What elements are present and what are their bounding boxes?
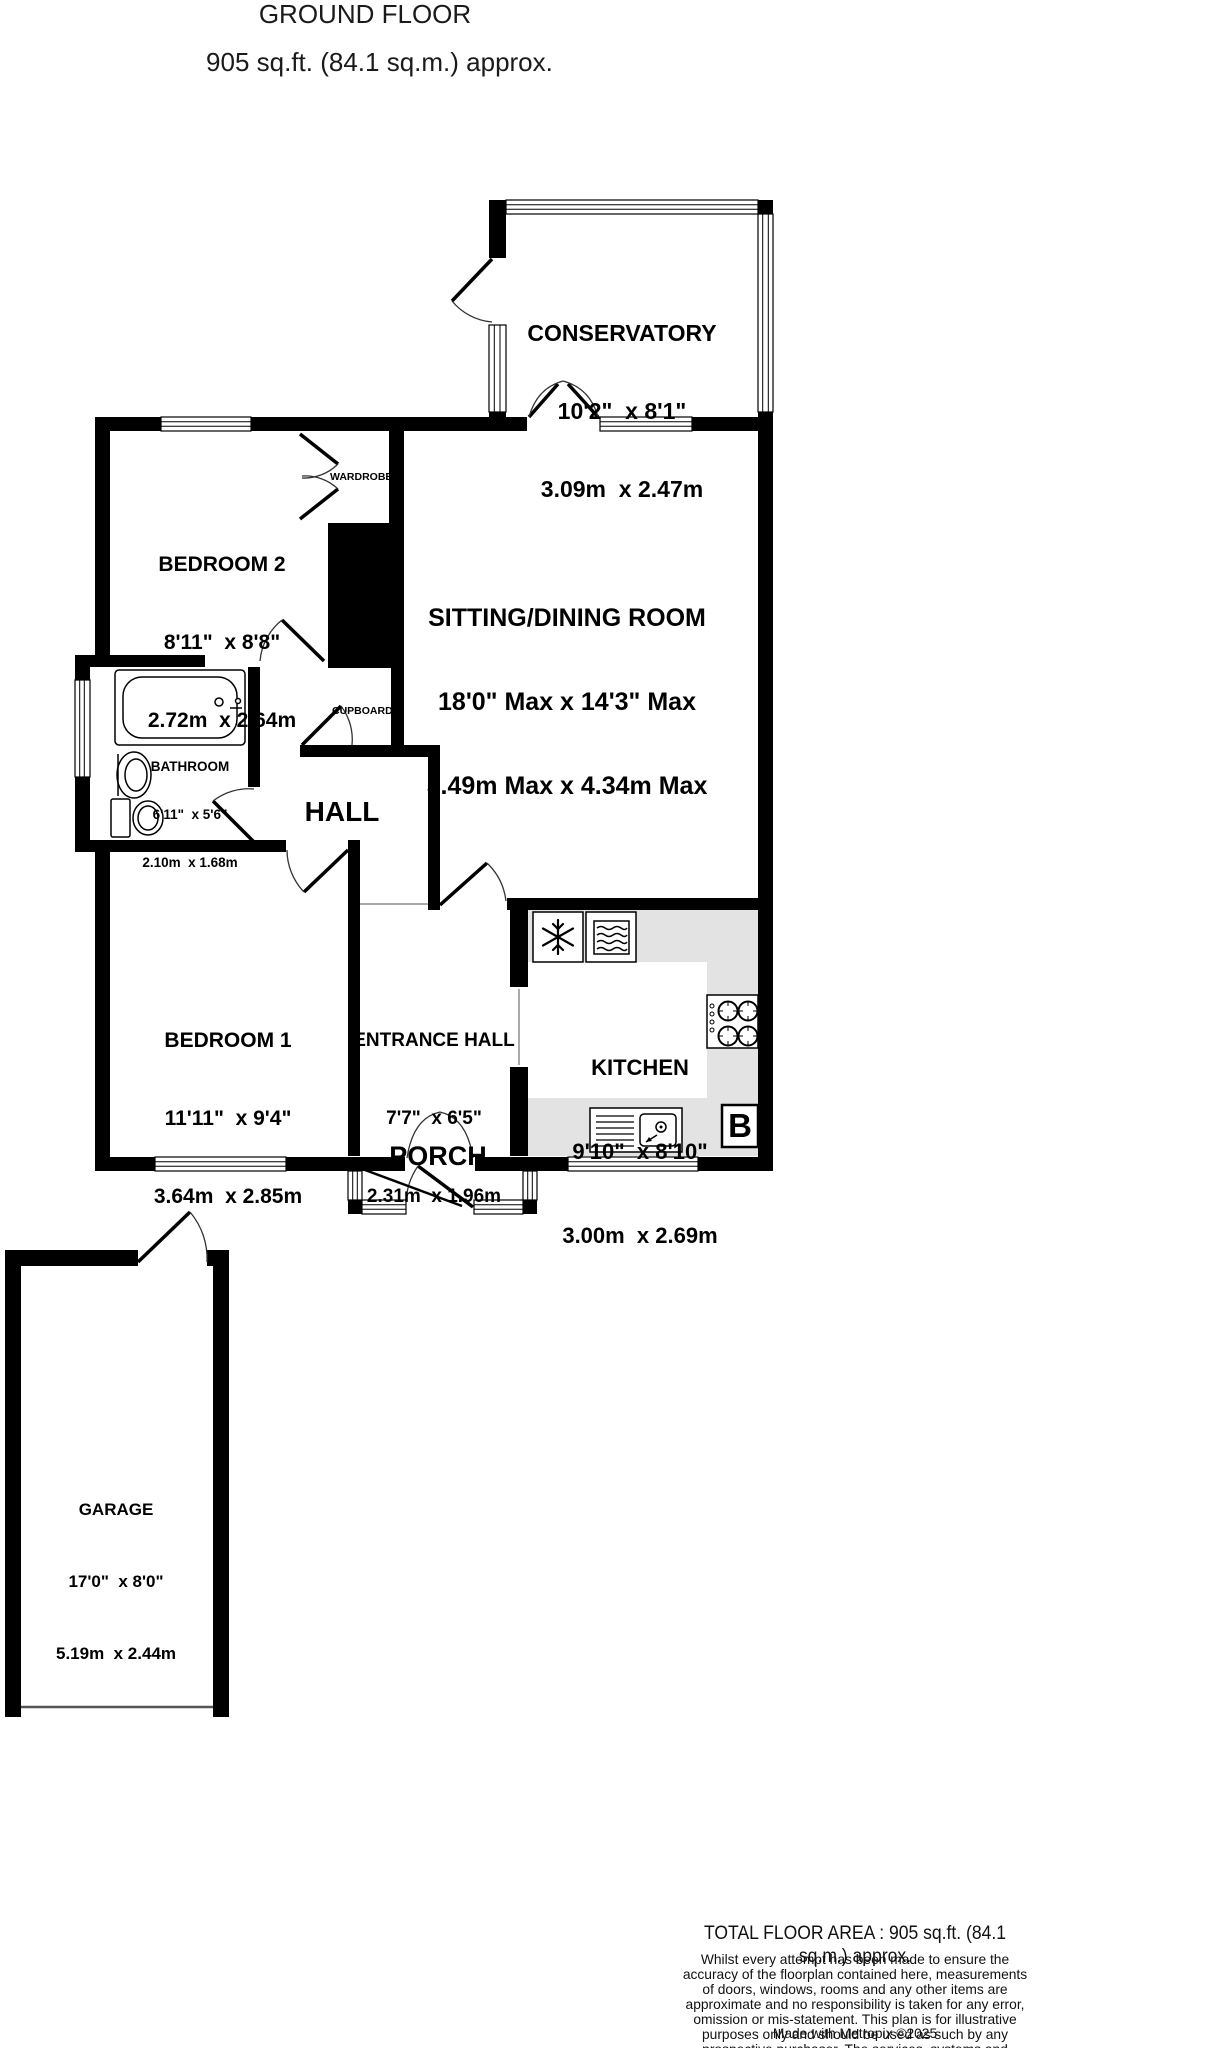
freezer-icon <box>533 912 583 962</box>
room-dims-metric: 2.31m x 1.96m <box>353 1184 515 1210</box>
room-dims-imperial: 7'7" x 6'5" <box>353 1106 515 1132</box>
room-name: BEDROOM 2 <box>148 552 296 578</box>
room-label-porch: PORCH <box>389 1141 487 1172</box>
oven-icon <box>586 912 636 962</box>
room-label-entrance-hall: ENTRANCE HALL 7'7" x 6'5" 2.31m x 1.96m <box>353 976 515 1262</box>
room-label-conservatory: CONSERVATORY 10'2" x 8'1" 3.09m x 2.47m <box>527 268 716 554</box>
room-dims-metric: 3.09m x 2.47m <box>527 476 716 502</box>
plan-title-area: 905 sq.ft. (84.1 sq.m.) approx. <box>206 47 553 77</box>
plan-title: GROUND FLOOR 905 sq.ft. (84.1 sq.m.) app… <box>177 2 553 74</box>
room-dims-imperial: 6'11" x 5'6" <box>142 807 237 823</box>
room-label-sitting-dining: SITTING/DINING ROOM 18'0" Max x 14'3" Ma… <box>427 548 708 856</box>
room-dims-imperial: 17'0" x 8'0" <box>56 1570 176 1594</box>
room-label-cupboard: CUPBOARD <box>332 705 393 717</box>
room-dims-imperial: 10'2" x 8'1" <box>527 398 716 424</box>
plan-title-line1: GROUND FLOOR <box>259 0 471 29</box>
room-label-hall: HALL <box>305 796 380 828</box>
room-dims-metric: 5.49m Max x 4.34m Max <box>427 772 708 800</box>
room-label-kitchen: KITCHEN 9'10" x 8'10" 3.00m x 2.69m <box>562 998 717 1306</box>
room-dims-imperial: 9'10" x 8'10" <box>562 1138 717 1166</box>
room-label-garage: GARAGE 17'0" x 8'0" 5.19m x 2.44m <box>56 1450 176 1714</box>
room-dims-imperial: 11'11" x 9'4" <box>154 1106 302 1132</box>
room-label-bedroom1: BEDROOM 1 11'11" x 9'4" 3.64m x 2.85m <box>154 976 302 1262</box>
room-name: SITTING/DINING ROOM <box>427 604 708 632</box>
room-dims-metric: 3.64m x 2.85m <box>154 1184 302 1210</box>
metropix-credit: Made with Metropix ©2025 <box>773 2026 937 2041</box>
room-label-bathroom: BATHROOM 6'11" x 5'6" 2.10m x 1.68m <box>142 727 237 903</box>
room-dims-imperial: 8'11" x 8'8" <box>148 630 296 656</box>
room-name: BEDROOM 1 <box>154 1028 302 1054</box>
room-dims-metric: 2.10m x 1.68m <box>142 855 237 871</box>
room-name: KITCHEN <box>562 1054 717 1082</box>
room-label-wardrobe: WARDROBE <box>330 471 392 483</box>
room-name: GARAGE <box>56 1498 176 1522</box>
room-name: ENTRANCE HALL <box>353 1028 515 1054</box>
boiler-badge: B <box>728 1107 752 1145</box>
floorplan-page: GROUND FLOOR 905 sq.ft. (84.1 sq.m.) app… <box>0 0 1214 2048</box>
room-name: BATHROOM <box>142 759 237 775</box>
room-dims-metric: 5.19m x 2.44m <box>56 1642 176 1666</box>
room-name: CONSERVATORY <box>527 320 716 346</box>
room-dims-metric: 3.00m x 2.69m <box>562 1222 717 1250</box>
room-dims-imperial: 18'0" Max x 14'3" Max <box>427 688 708 716</box>
